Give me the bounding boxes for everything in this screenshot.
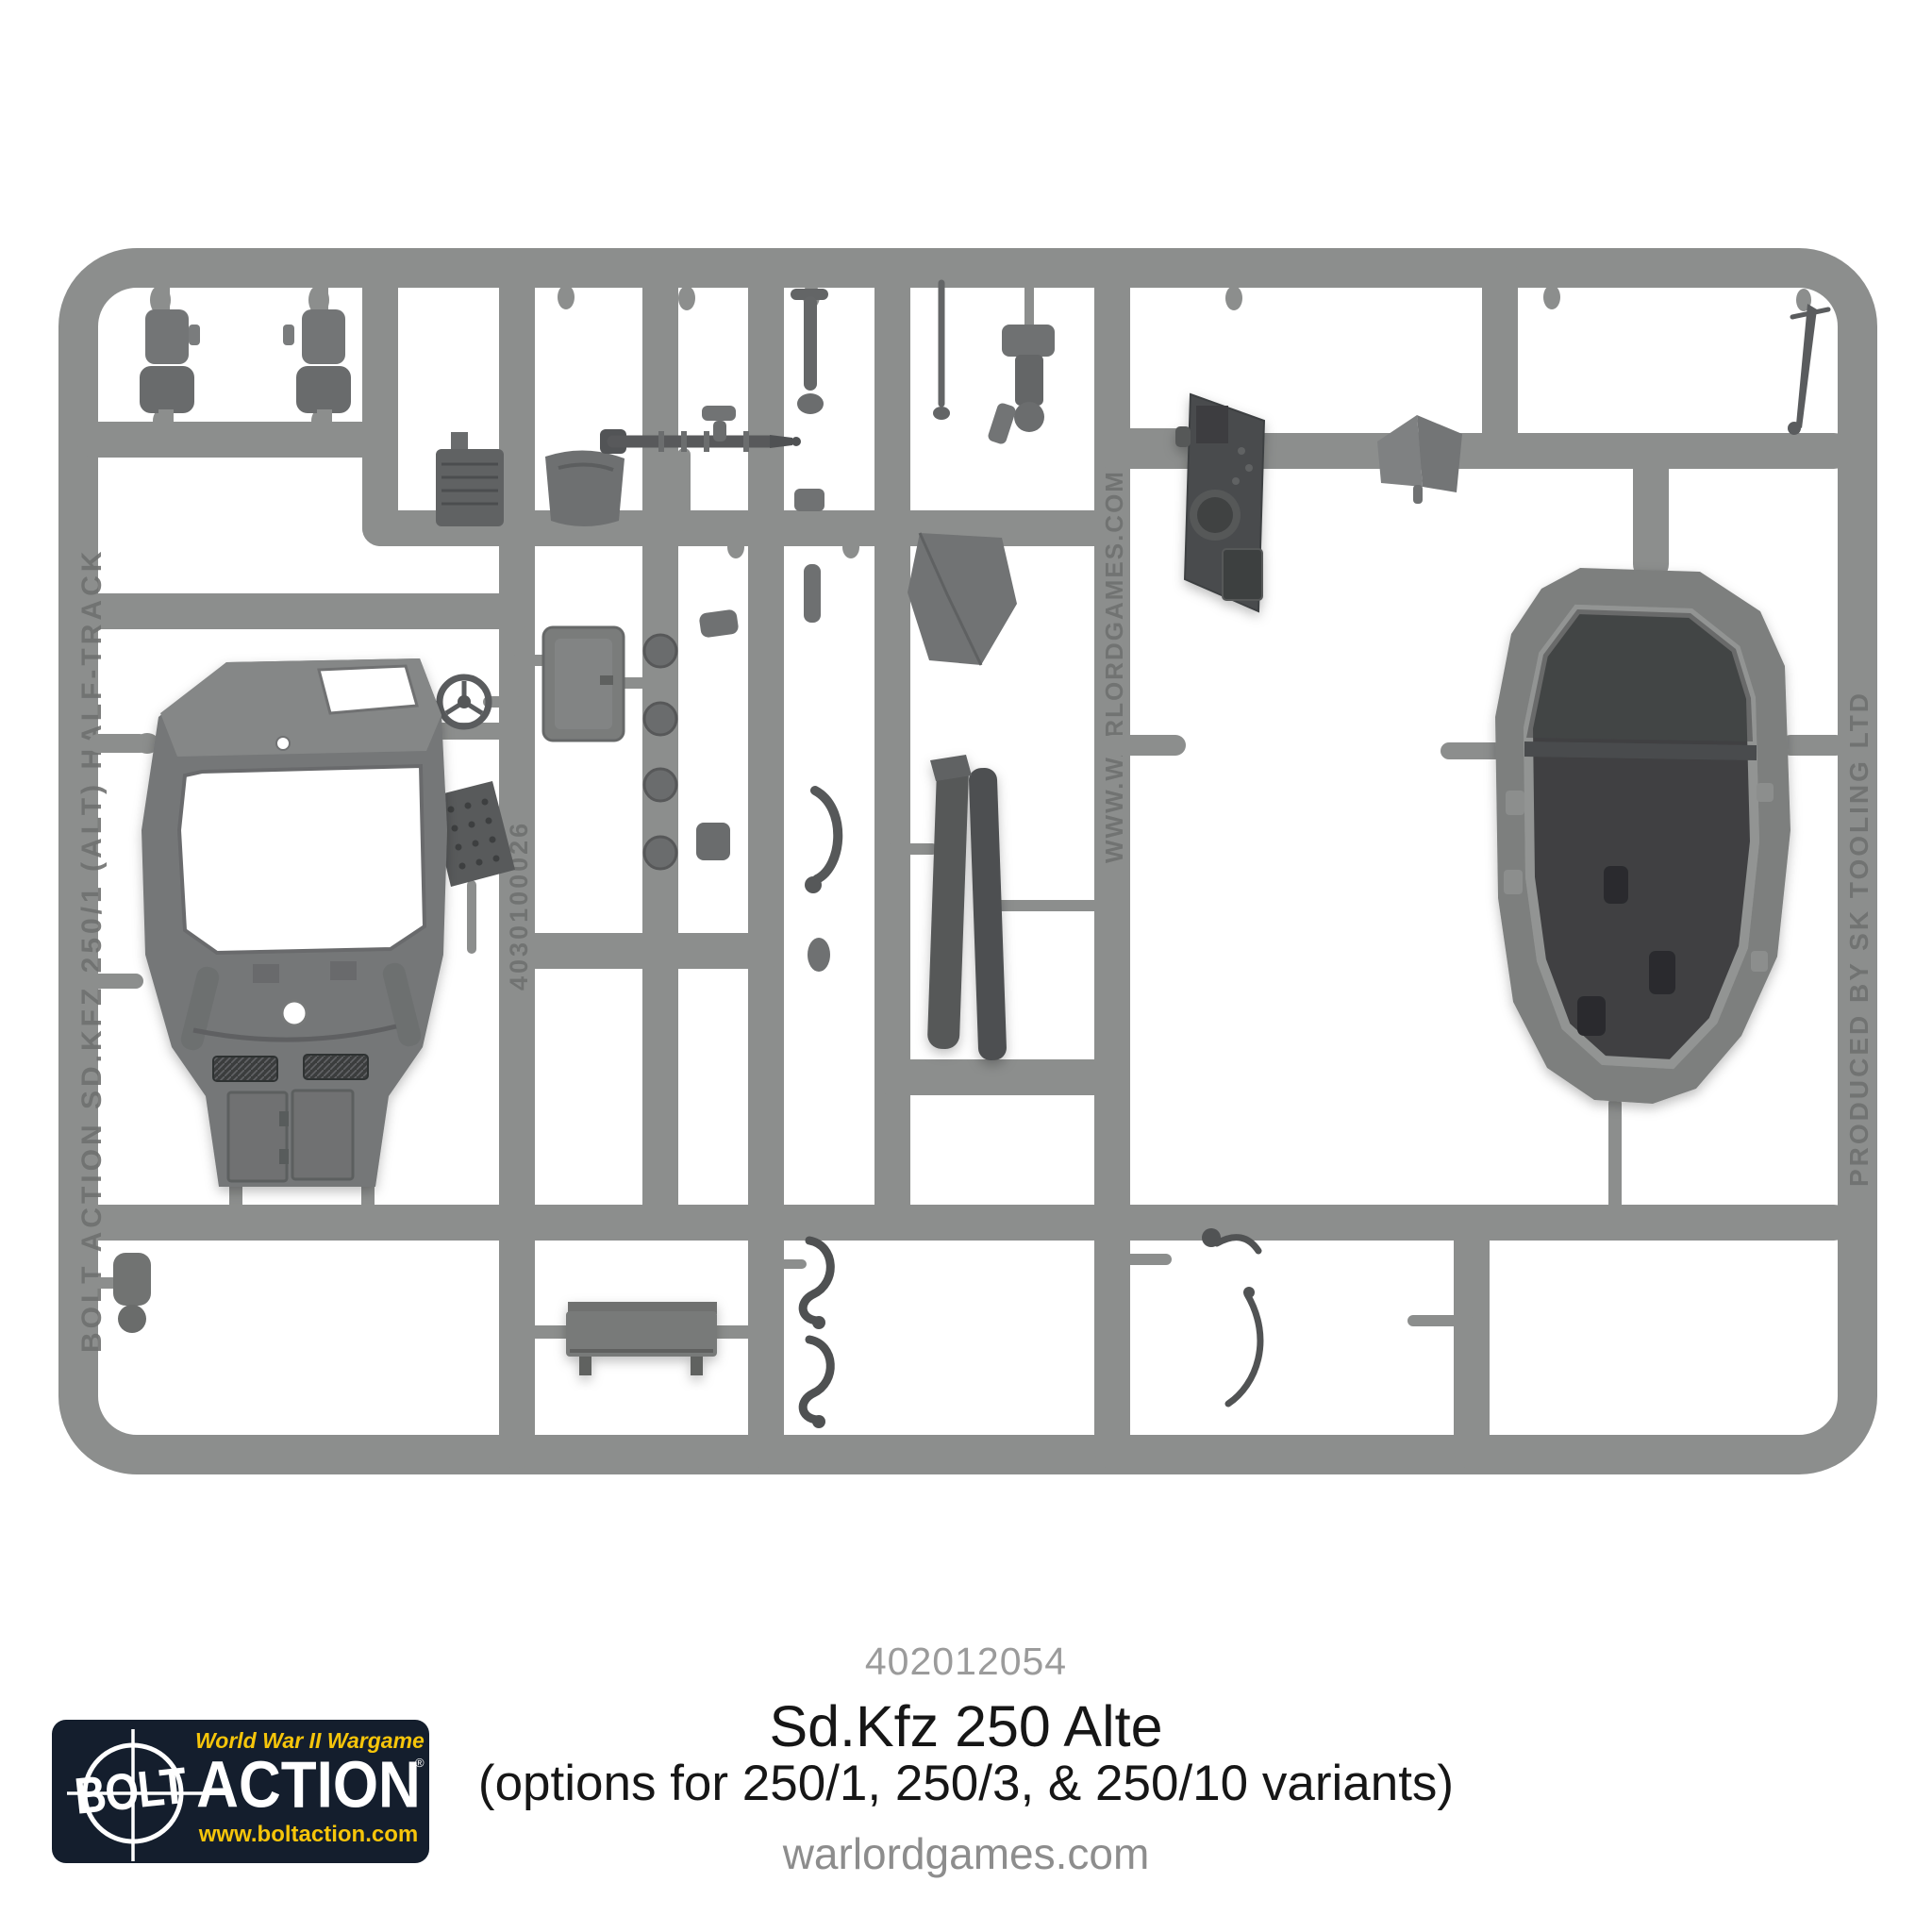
logo-url: www.boltaction.com [195,1822,422,1848]
part-steering-wheel [440,677,489,726]
part-stowage-box [543,627,624,741]
part-antenna [1788,304,1828,435]
part-suspension-bogie-1 [140,283,200,434]
part-mg-mount [933,283,1055,445]
part-fender [1377,415,1462,504]
part-armor-plate [908,533,1017,665]
part-wire-rods [1202,1228,1260,1404]
logo-word-action: ACTION [193,1748,424,1824]
part-hook-lever [804,564,838,972]
embossed-text-warlordgames: WWW.WARLORDGAMES.COM [1100,470,1128,863]
embossed-text-halftrack: BOLT ACTION SD.KFZ 250/1 (ALT) HALF-TRAC… [76,548,108,1353]
part-lower-hull-tub [1495,568,1790,1104]
part-lever-rod [791,289,828,511]
part-seat-back [545,450,625,526]
product-image: BOLT ACTION SD.KFZ 250/1 (ALT) HALF-TRAC… [0,0,1932,1932]
part-left-bottom-blob [113,1253,151,1333]
part-track-guards [927,755,1008,1060]
part-instrument-panel [1175,394,1264,611]
product-sku: 402012054 [0,1640,1932,1684]
part-suspension-bogie-2 [283,283,351,434]
part-small-brackets [696,406,740,860]
bolt-action-logo: BOLT World War II Wargame ACTION ® www.b… [52,1720,429,1863]
part-radiator [436,432,504,526]
registered-trademark-mark: ® [415,1756,425,1770]
part-upper-hull [142,658,447,1187]
part-tow-hooks [803,1241,830,1428]
part-bench-seat [566,1302,717,1375]
embossed-text-sktooling: PRODUCED BY SK TOOLING LTD [1844,691,1874,1187]
